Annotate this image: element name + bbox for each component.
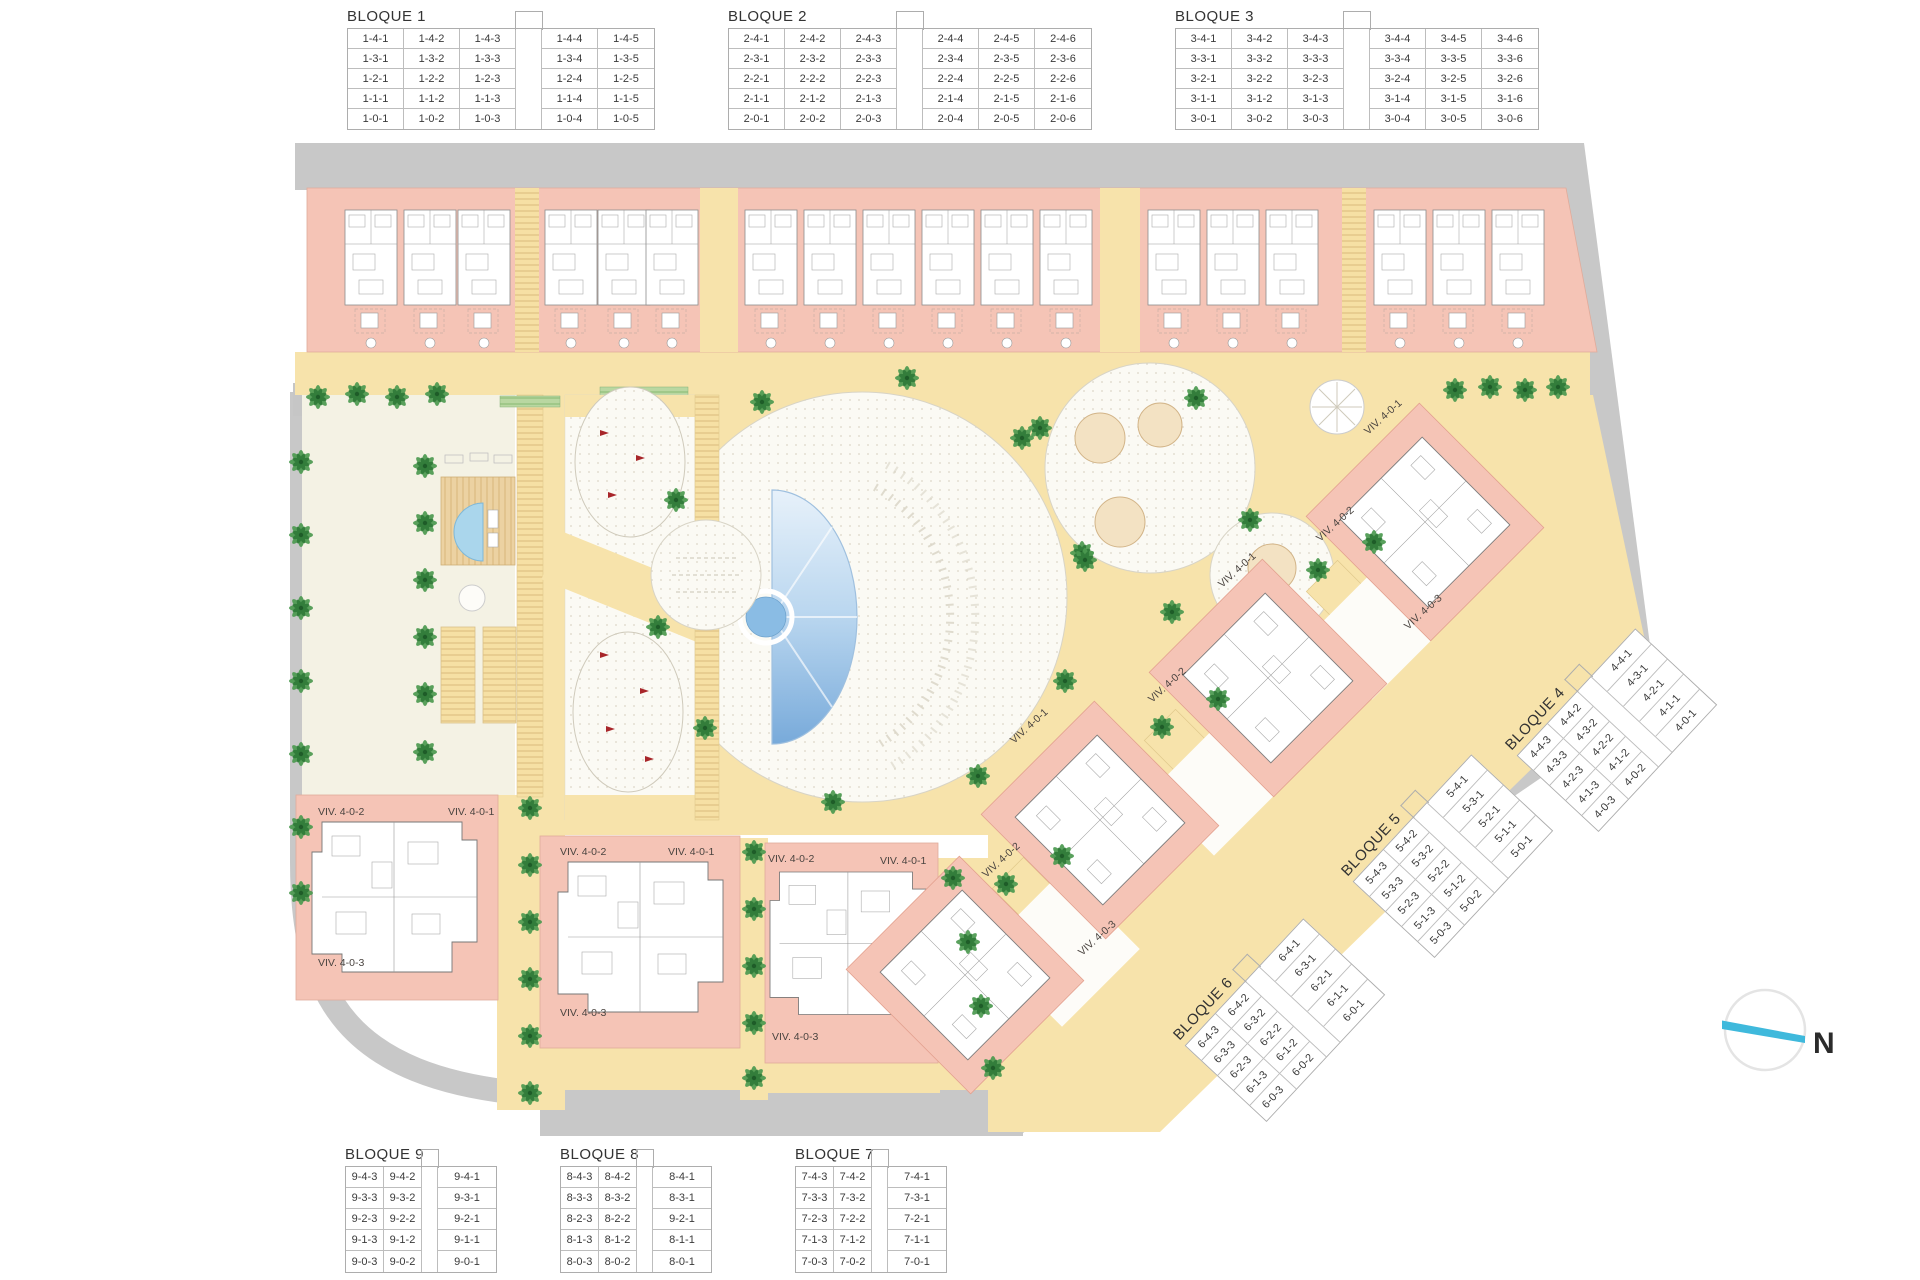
unit-cell: 2-3-6 xyxy=(1035,49,1091,69)
unit-cell: 9-1-2 xyxy=(384,1230,422,1251)
unit-cell: 7-4-1 xyxy=(888,1167,946,1188)
unit-cell: 7-0-3 xyxy=(796,1251,834,1272)
unit-cell: 1-2-5 xyxy=(598,69,654,89)
viv-label: VIV. 4-0-1 xyxy=(668,846,714,858)
unit-cell: 1-1-5 xyxy=(598,89,654,109)
unit-cell: 8-0-2 xyxy=(599,1251,637,1272)
table-row: 1-1-11-1-21-1-31-1-41-1-5 xyxy=(348,89,654,109)
table-row: 9-1-39-1-29-1-1 xyxy=(346,1230,496,1251)
unit-cell: 3-1-4 xyxy=(1370,89,1426,109)
unit-cell: 9-2-3 xyxy=(346,1209,384,1230)
unit-cell: 8-0-1 xyxy=(653,1251,711,1272)
unit-cell: 2-1-4 xyxy=(923,89,979,109)
unit-cell: 8-4-2 xyxy=(599,1167,637,1188)
unit-cell: 2-1-2 xyxy=(785,89,841,109)
unit-cell: 7-3-2 xyxy=(834,1188,872,1209)
unit-cell: 3-1-2 xyxy=(1232,89,1288,109)
table-row: 1-4-11-4-21-4-31-4-41-4-5 xyxy=(348,29,654,49)
unit-cell: 8-4-1 xyxy=(653,1167,711,1188)
unit-cell: 2-2-6 xyxy=(1035,69,1091,89)
unit-cell: 9-0-2 xyxy=(384,1251,422,1272)
unit-cell: 3-4-2 xyxy=(1232,29,1288,49)
unit-cell: 1-3-3 xyxy=(460,49,516,69)
table-row: 7-4-37-4-27-4-1 xyxy=(796,1167,946,1188)
unit-cell: 3-2-5 xyxy=(1426,69,1482,89)
unit-cell: 9-0-3 xyxy=(346,1251,384,1272)
unit-cell: 2-4-5 xyxy=(979,29,1035,49)
unit-cell: 3-1-6 xyxy=(1482,89,1538,109)
unit-cell: 8-1-1 xyxy=(653,1230,711,1251)
table-row: 2-3-12-3-22-3-32-3-42-3-52-3-6 xyxy=(729,49,1091,69)
bloque-1-table: BLOQUE 11-4-11-4-21-4-31-4-41-4-51-3-11-… xyxy=(347,8,655,130)
table-row: 8-0-38-0-28-0-1 xyxy=(561,1251,711,1272)
unit-cell: 3-0-4 xyxy=(1370,109,1426,129)
unit-cell: 1-3-4 xyxy=(542,49,598,69)
unit-cell: 3-0-5 xyxy=(1426,109,1482,129)
unit-cell: 3-1-3 xyxy=(1288,89,1344,109)
unit-cell: 1-1-1 xyxy=(348,89,404,109)
unit-cell: 7-1-2 xyxy=(834,1230,872,1251)
table-row: 3-2-13-2-23-2-33-2-43-2-53-2-6 xyxy=(1176,69,1538,89)
unit-cell: 9-0-1 xyxy=(438,1251,496,1272)
table-row: 3-0-13-0-23-0-33-0-43-0-53-0-6 xyxy=(1176,109,1538,129)
bloque-2-table: BLOQUE 22-4-12-4-22-4-32-4-42-4-52-4-62-… xyxy=(728,8,1092,130)
gap-cell xyxy=(897,109,923,129)
unit-cell: 1-1-2 xyxy=(404,89,460,109)
gap-cell xyxy=(422,1251,438,1272)
bloque-3-table: BLOQUE 33-4-13-4-23-4-33-4-43-4-53-4-63-… xyxy=(1175,8,1539,130)
gap-cell xyxy=(872,1230,888,1251)
unit-cell: 3-4-6 xyxy=(1482,29,1538,49)
compass: N xyxy=(1722,990,1835,1070)
unit-cell: 2-3-4 xyxy=(923,49,979,69)
unit-cell: 1-3-5 xyxy=(598,49,654,69)
pergola-1 xyxy=(441,627,475,723)
unit-cell: 8-3-1 xyxy=(653,1188,711,1209)
unit-cell: 2-1-6 xyxy=(1035,89,1091,109)
unit-cell: 1-4-3 xyxy=(460,29,516,49)
unit-cell: 7-2-1 xyxy=(888,1209,946,1230)
unit-cell: 3-3-1 xyxy=(1176,49,1232,69)
unit-cell: 2-2-4 xyxy=(923,69,979,89)
unit-grid: 2-4-12-4-22-4-32-4-42-4-52-4-62-3-12-3-2… xyxy=(728,28,1092,130)
viv-label: VIV. 4-0-2 xyxy=(768,853,814,865)
unit-cell: 2-3-2 xyxy=(785,49,841,69)
viv-label: VIV. 4-0-1 xyxy=(448,806,494,818)
unit-cell: 2-0-5 xyxy=(979,109,1035,129)
gap-box xyxy=(896,11,924,30)
site-plan-page: VIV. 4-0-2 VIV. 4-0-1 VIV. 4-0-3 VIV. 4-… xyxy=(0,0,1920,1280)
unit-grid: 9-4-39-4-29-4-19-3-39-3-29-3-19-2-39-2-2… xyxy=(345,1166,497,1273)
table-row: 7-0-37-0-27-0-1 xyxy=(796,1251,946,1272)
table-row: 3-1-13-1-23-1-33-1-43-1-53-1-6 xyxy=(1176,89,1538,109)
table-row: 2-1-12-1-22-1-32-1-42-1-52-1-6 xyxy=(729,89,1091,109)
unit-cell: 3-3-4 xyxy=(1370,49,1426,69)
unit-grid: 7-4-37-4-27-4-17-3-37-3-27-3-17-2-37-2-2… xyxy=(795,1166,947,1273)
unit-cell: 3-3-5 xyxy=(1426,49,1482,69)
gap-cell xyxy=(1344,69,1370,89)
unit-cell: 8-2-2 xyxy=(599,1209,637,1230)
unit-cell: 3-3-6 xyxy=(1482,49,1538,69)
gap-cell xyxy=(637,1167,653,1188)
unit-cell: 8-1-3 xyxy=(561,1230,599,1251)
gap-cell xyxy=(872,1188,888,1209)
table-row: 3-4-13-4-23-4-33-4-43-4-53-4-6 xyxy=(1176,29,1538,49)
unit-cell: 8-0-3 xyxy=(561,1251,599,1272)
unit-cell: 1-0-1 xyxy=(348,109,404,129)
unit-cell: 3-2-2 xyxy=(1232,69,1288,89)
gap-cell xyxy=(897,69,923,89)
gap-cell xyxy=(1344,89,1370,109)
unit-cell: 1-0-2 xyxy=(404,109,460,129)
unit-cell: 7-3-1 xyxy=(888,1188,946,1209)
gap-cell xyxy=(516,29,542,49)
unit-cell: 1-2-2 xyxy=(404,69,460,89)
unit-cell: 3-4-4 xyxy=(1370,29,1426,49)
gap-cell xyxy=(637,1188,653,1209)
unit-cell: 7-4-2 xyxy=(834,1167,872,1188)
unit-cell: 3-2-3 xyxy=(1288,69,1344,89)
gap-cell xyxy=(637,1209,653,1230)
gap-cell xyxy=(872,1209,888,1230)
table-row: 3-3-13-3-23-3-33-3-43-3-53-3-6 xyxy=(1176,49,1538,69)
bloque-7-table: BLOQUE 77-4-37-4-27-4-17-3-37-3-27-3-17-… xyxy=(795,1146,947,1273)
unit-cell: 2-2-5 xyxy=(979,69,1035,89)
gap-cell xyxy=(422,1188,438,1209)
table-row: 9-3-39-3-29-3-1 xyxy=(346,1188,496,1209)
pergola-2 xyxy=(483,627,516,723)
unit-cell: 1-0-4 xyxy=(542,109,598,129)
table-row: 9-0-39-0-29-0-1 xyxy=(346,1251,496,1272)
unit-cell: 8-4-3 xyxy=(561,1167,599,1188)
unit-cell: 2-3-5 xyxy=(979,49,1035,69)
table-row: 9-2-39-2-29-2-1 xyxy=(346,1209,496,1230)
unit-cell: 9-3-3 xyxy=(346,1188,384,1209)
unit-cell: 9-1-1 xyxy=(438,1230,496,1251)
viv-label: VIV. 4-0-2 xyxy=(318,806,364,818)
gap-cell xyxy=(1344,109,1370,129)
unit-cell: 7-2-3 xyxy=(796,1209,834,1230)
unit-cell: 2-2-3 xyxy=(841,69,897,89)
unit-cell: 2-4-3 xyxy=(841,29,897,49)
unit-grid: 1-4-11-4-21-4-31-4-41-4-51-3-11-3-21-3-3… xyxy=(347,28,655,130)
unit-cell: 7-0-2 xyxy=(834,1251,872,1272)
unit-cell: 9-3-2 xyxy=(384,1188,422,1209)
unit-cell: 1-2-4 xyxy=(542,69,598,89)
bloque-8-table: BLOQUE 88-4-38-4-28-4-18-3-38-3-28-3-18-… xyxy=(560,1146,712,1273)
unit-cell: 2-0-1 xyxy=(729,109,785,129)
unit-cell: 3-2-4 xyxy=(1370,69,1426,89)
table-title: BLOQUE 1 xyxy=(347,8,655,28)
gap-box xyxy=(636,1149,654,1168)
bottom-buildings xyxy=(296,795,938,1063)
unit-cell: 2-3-3 xyxy=(841,49,897,69)
unit-cell: 2-1-1 xyxy=(729,89,785,109)
gap-cell xyxy=(516,69,542,89)
unit-cell: 7-1-1 xyxy=(888,1230,946,1251)
viv-label: VIV. 4-0-3 xyxy=(318,957,364,969)
unit-cell: 1-1-4 xyxy=(542,89,598,109)
gap-cell xyxy=(872,1167,888,1188)
table-row: 2-4-12-4-22-4-32-4-42-4-52-4-6 xyxy=(729,29,1091,49)
table-row: 1-0-11-0-21-0-31-0-41-0-5 xyxy=(348,109,654,129)
unit-cell: 7-0-1 xyxy=(888,1251,946,1272)
gap-box xyxy=(871,1149,889,1168)
unit-cell: 9-3-1 xyxy=(438,1188,496,1209)
unit-cell: 3-0-2 xyxy=(1232,109,1288,129)
gap-cell xyxy=(872,1251,888,1272)
unit-cell: 3-0-6 xyxy=(1482,109,1538,129)
gap-cell xyxy=(422,1230,438,1251)
gap-cell xyxy=(637,1251,653,1272)
unit-cell: 3-1-1 xyxy=(1176,89,1232,109)
unit-cell: 2-1-3 xyxy=(841,89,897,109)
splash-pond-1 xyxy=(575,387,685,537)
unit-cell: 9-4-3 xyxy=(346,1167,384,1188)
unit-cell: 9-4-2 xyxy=(384,1167,422,1188)
gap-box xyxy=(1343,11,1371,30)
unit-cell: 3-4-3 xyxy=(1288,29,1344,49)
unit-cell: 1-1-3 xyxy=(460,89,516,109)
unit-cell: 2-1-5 xyxy=(979,89,1035,109)
unit-grid: 8-4-38-4-28-4-18-3-38-3-28-3-18-2-38-2-2… xyxy=(560,1166,712,1273)
lounger-circle xyxy=(651,520,761,630)
bloque-9-table: BLOQUE 99-4-39-4-29-4-19-3-39-3-29-3-19-… xyxy=(345,1146,497,1273)
gap-cell xyxy=(422,1209,438,1230)
unit-cell: 1-4-2 xyxy=(404,29,460,49)
unit-cell: 1-2-3 xyxy=(460,69,516,89)
unit-cell: 2-3-1 xyxy=(729,49,785,69)
unit-cell: 8-1-2 xyxy=(599,1230,637,1251)
viv-label: VIV. 4-0-2 xyxy=(560,846,606,858)
table-row: 8-4-38-4-28-4-1 xyxy=(561,1167,711,1188)
top-building-strip xyxy=(307,188,1597,352)
table-row: 8-1-38-1-28-1-1 xyxy=(561,1230,711,1251)
unit-cell: 2-4-6 xyxy=(1035,29,1091,49)
unit-cell: 1-3-1 xyxy=(348,49,404,69)
unit-cell: 3-1-5 xyxy=(1426,89,1482,109)
unit-cell: 2-0-4 xyxy=(923,109,979,129)
gap-cell xyxy=(516,109,542,129)
unit-cell: 7-4-3 xyxy=(796,1167,834,1188)
unit-cell: 9-2-2 xyxy=(384,1209,422,1230)
gap-cell xyxy=(422,1167,438,1188)
unit-cell: 9-4-1 xyxy=(438,1167,496,1188)
unit-cell: 3-3-2 xyxy=(1232,49,1288,69)
gap-box xyxy=(515,11,543,30)
table-row: 7-3-37-3-27-3-1 xyxy=(796,1188,946,1209)
viv-label: VIV. 4-0-3 xyxy=(772,1031,818,1043)
gap-cell xyxy=(897,89,923,109)
table-row: 8-2-38-2-29-2-1 xyxy=(561,1209,711,1230)
unit-cell: 7-2-2 xyxy=(834,1209,872,1230)
unit-cell: 1-2-1 xyxy=(348,69,404,89)
gap-cell xyxy=(637,1230,653,1251)
unit-cell: 8-3-2 xyxy=(599,1188,637,1209)
unit-cell: 9-2-1 xyxy=(438,1209,496,1230)
unit-cell: 9-2-1 xyxy=(653,1209,711,1230)
gap-cell xyxy=(1344,49,1370,69)
unit-cell: 2-2-2 xyxy=(785,69,841,89)
table-row: 8-3-38-3-28-3-1 xyxy=(561,1188,711,1209)
unit-cell: 3-4-5 xyxy=(1426,29,1482,49)
unit-cell: 1-4-1 xyxy=(348,29,404,49)
unit-cell: 2-0-2 xyxy=(785,109,841,129)
unit-cell: 1-3-2 xyxy=(404,49,460,69)
unit-cell: 1-0-5 xyxy=(598,109,654,129)
unit-cell: 3-2-6 xyxy=(1482,69,1538,89)
gap-cell xyxy=(897,29,923,49)
unit-cell: 9-1-3 xyxy=(346,1230,384,1251)
splash-pond-2 xyxy=(573,632,683,792)
unit-cell: 3-0-1 xyxy=(1176,109,1232,129)
unit-cell: 1-4-4 xyxy=(542,29,598,49)
unit-cell: 7-3-3 xyxy=(796,1188,834,1209)
unit-cell: 2-0-6 xyxy=(1035,109,1091,129)
table-row: 1-3-11-3-21-3-31-3-41-3-5 xyxy=(348,49,654,69)
table-row: 1-2-11-2-21-2-31-2-41-2-5 xyxy=(348,69,654,89)
unit-cell: 3-0-3 xyxy=(1288,109,1344,129)
unit-cell: 1-0-3 xyxy=(460,109,516,129)
unit-cell: 7-1-3 xyxy=(796,1230,834,1251)
unit-cell: 1-4-5 xyxy=(598,29,654,49)
unit-cell: 2-4-2 xyxy=(785,29,841,49)
table-row: 7-1-37-1-27-1-1 xyxy=(796,1230,946,1251)
unit-cell: 3-3-3 xyxy=(1288,49,1344,69)
unit-cell: 8-2-3 xyxy=(561,1209,599,1230)
unit-cell: 2-4-1 xyxy=(729,29,785,49)
table-row: 2-0-12-0-22-0-32-0-42-0-52-0-6 xyxy=(729,109,1091,129)
unit-cell: 2-2-1 xyxy=(729,69,785,89)
unit-cell: 3-4-1 xyxy=(1176,29,1232,49)
unit-cell: 2-4-4 xyxy=(923,29,979,49)
compass-north-label: N xyxy=(1813,1027,1835,1060)
gap-cell xyxy=(516,89,542,109)
table-row: 2-2-12-2-22-2-32-2-42-2-52-2-6 xyxy=(729,69,1091,89)
viv-label: VIV. 4-0-3 xyxy=(560,1007,606,1019)
unit-cell: 8-3-3 xyxy=(561,1188,599,1209)
gap-cell xyxy=(516,49,542,69)
gap-cell xyxy=(1344,29,1370,49)
unit-cell: 3-2-1 xyxy=(1176,69,1232,89)
table-row: 7-2-37-2-27-2-1 xyxy=(796,1209,946,1230)
viv-label: VIV. 4-0-1 xyxy=(880,855,926,867)
table-row: 9-4-39-4-29-4-1 xyxy=(346,1167,496,1188)
unit-grid: 3-4-13-4-23-4-33-4-43-4-53-4-63-3-13-3-2… xyxy=(1175,28,1539,130)
gap-cell xyxy=(897,49,923,69)
gap-box xyxy=(421,1149,439,1168)
unit-cell: 2-0-3 xyxy=(841,109,897,129)
